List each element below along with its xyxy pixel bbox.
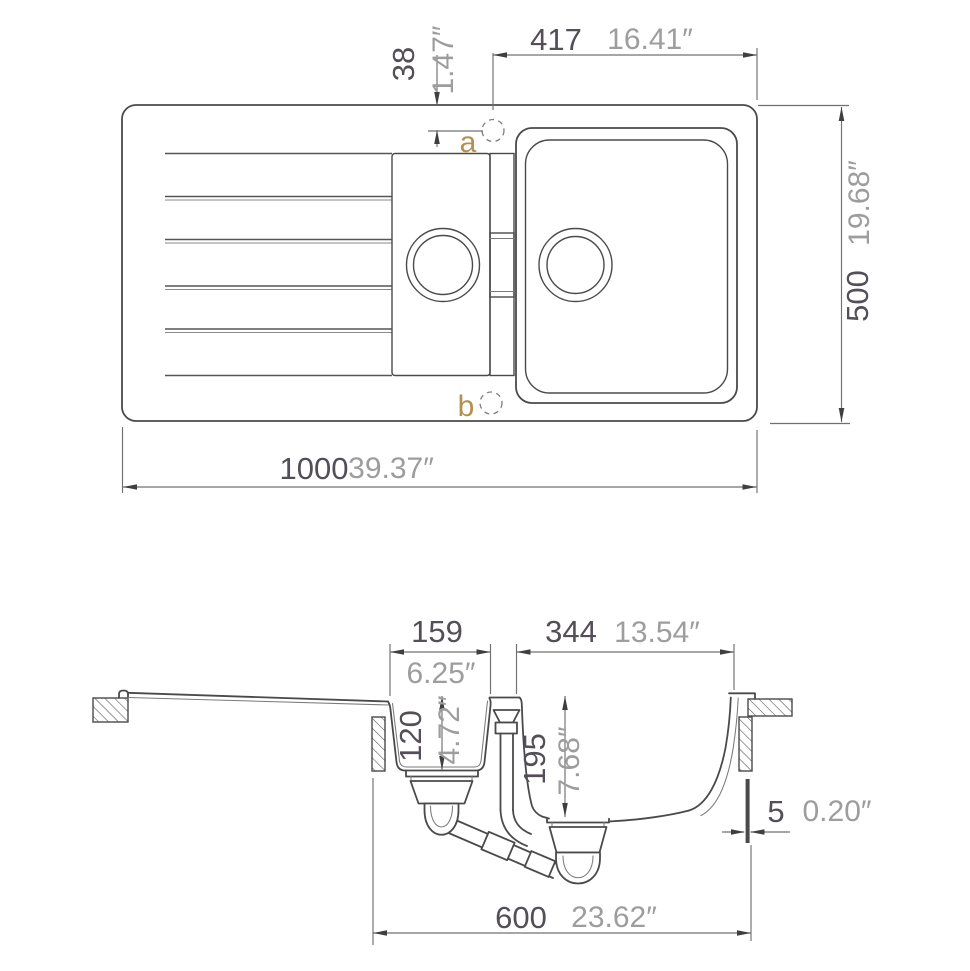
tap-hole-b-label: b (458, 390, 475, 423)
dim-600-mm: 600 (495, 900, 547, 935)
main-bowl-trap (547, 819, 609, 884)
rim-left-edge (119, 691, 128, 699)
dim-417-mm: 417 (530, 22, 582, 57)
dim-1000-inch: 39.37″ (348, 452, 434, 485)
pipe-coupling-nut (525, 851, 556, 877)
main-bowl-plan (516, 128, 737, 403)
dim-195-inch: 7.68″ (553, 726, 586, 795)
dim-overall-width: 1000 39.37″ (123, 427, 758, 493)
pipe-coupling-nut (481, 832, 514, 860)
dim-5-mm: 5 (767, 794, 784, 829)
top-view: a b 417 16.41″ 38 1.47″ (122, 22, 876, 493)
dim-5-inch: 0.20″ (802, 795, 871, 828)
main-bowl-drain (539, 229, 612, 302)
dim-1000-mm: 1000 (280, 451, 349, 486)
sink-dimension-drawing-page: a b 417 16.41″ 38 1.47″ (0, 0, 970, 971)
drainboard-surface (128, 693, 388, 702)
dim-195-mm: 195 (517, 733, 552, 785)
cabinet-panel-right (739, 717, 752, 771)
cabinet-panel-left (372, 717, 385, 771)
dim-120-mm: 120 (393, 710, 428, 762)
dim-main-bowl-width: 344 13.54″ (517, 614, 735, 694)
dim-417-inch: 16.41″ (607, 23, 693, 56)
section-view: 159 6.25″ 344 13.54″ 120 4.72″ 195 (93, 614, 872, 945)
dim-bowl-section-width: 417 16.41″ (493, 22, 757, 110)
bowl-divider (490, 154, 514, 376)
dim-344-mm: 344 (545, 614, 597, 649)
dim-120-inch: 4.72″ (433, 695, 466, 764)
dim-500-mm: 500 (840, 270, 875, 322)
overflow-connector (490, 233, 514, 297)
countertop-right-section (748, 699, 792, 716)
dim-344-inch: 13.54″ (614, 616, 700, 649)
dim-38-mm: 38 (386, 47, 421, 81)
rim-lip (746, 779, 750, 843)
dim-half-bowl-width: 159 6.25″ (390, 614, 491, 696)
half-bowl-drain (407, 229, 480, 302)
sink-technical-drawing: a b 417 16.41″ 38 1.47″ (0, 0, 970, 971)
rim-right-edge (729, 693, 755, 699)
half-bowl-plan (392, 154, 490, 376)
dim-rim-lip: 5 0.20″ (722, 794, 872, 835)
countertop-left-section (93, 698, 128, 722)
dim-main-bowl-depth: 195 7.68″ (517, 696, 586, 817)
dim-159-inch: 6.25″ (406, 657, 475, 690)
drainboard-grooves (165, 154, 392, 376)
dim-38-inch: 1.47″ (427, 25, 460, 94)
dim-500-inch: 19.68″ (843, 160, 876, 246)
dim-600-inch: 23.62″ (571, 901, 657, 934)
dim-159-mm: 159 (411, 614, 463, 649)
tap-hole-a (482, 120, 504, 142)
dim-half-bowl-depth: 120 4.72″ (393, 695, 466, 770)
dim-overall-depth: 500 19.68″ (758, 106, 876, 424)
tap-hole-b (480, 392, 502, 414)
sink-outline (122, 105, 757, 421)
